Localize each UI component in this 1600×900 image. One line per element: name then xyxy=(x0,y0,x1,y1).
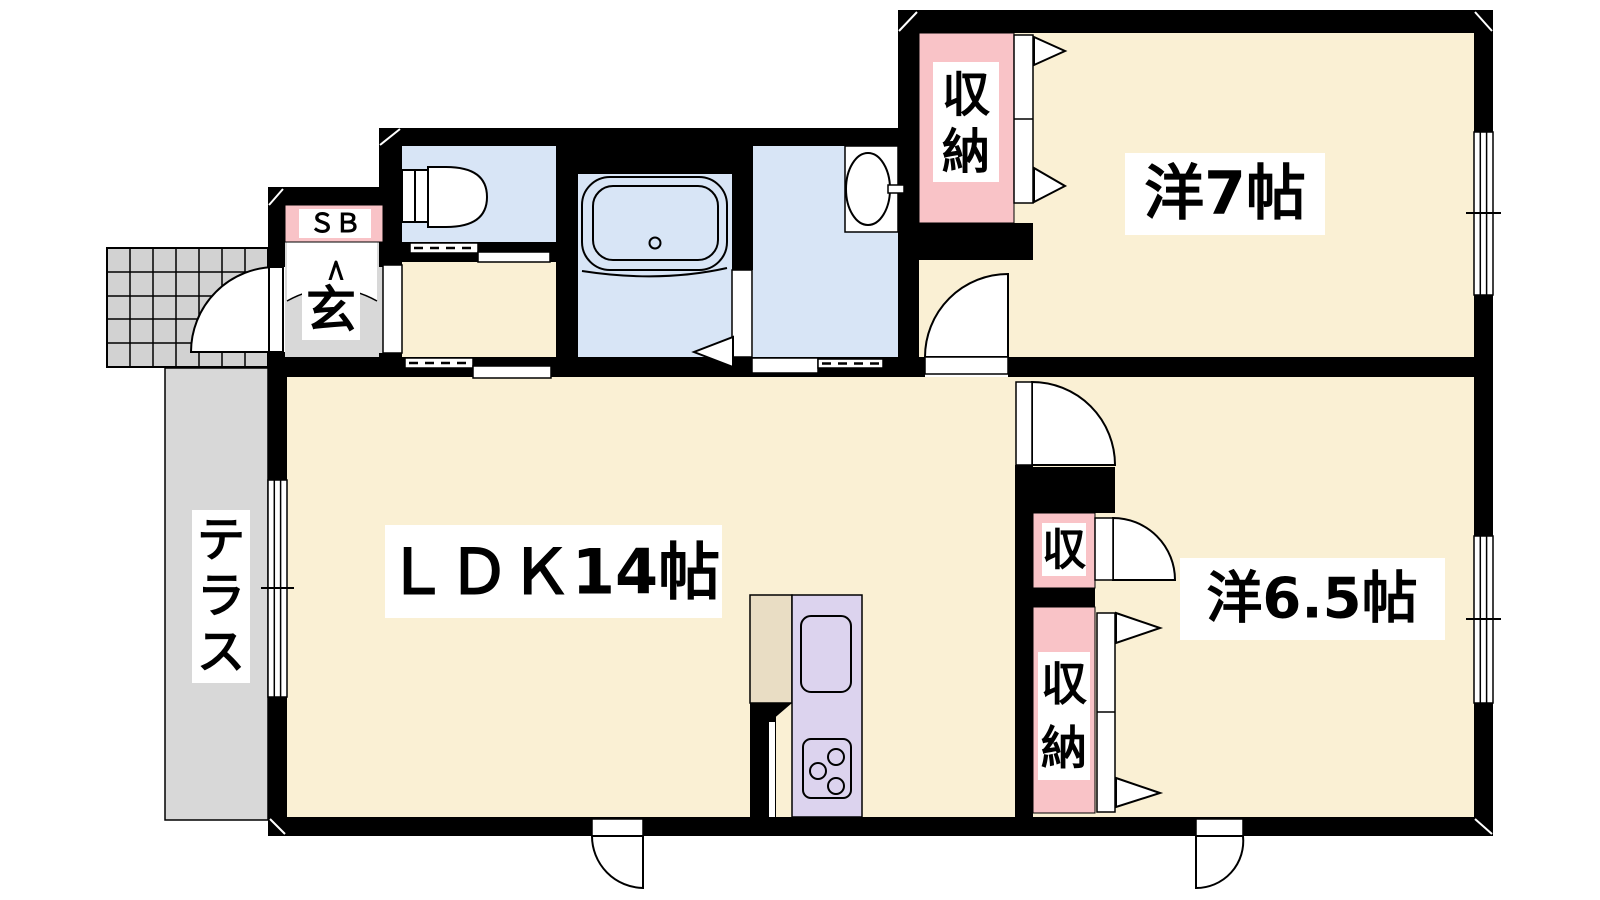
bathroom-floor xyxy=(578,174,732,357)
entrance-label: 玄 xyxy=(306,281,356,339)
genkan-hall-opening xyxy=(383,265,402,353)
bedroom65-label: 洋6.5帖 xyxy=(1206,567,1417,632)
terrace-label-3: ス xyxy=(197,624,245,680)
refrigerator-space xyxy=(750,595,792,703)
closet-small-label: 収 xyxy=(1042,525,1086,576)
terrace-label-2: ラ xyxy=(197,568,245,624)
terrace-label-1: テ xyxy=(197,512,245,568)
bedroom7-label: 洋7帖 xyxy=(1144,159,1306,229)
kitchen xyxy=(750,595,862,817)
closet-ne-label-2: 納 xyxy=(942,124,990,180)
floor-plan: ＳＢ 収 納 xyxy=(0,0,1600,900)
hallway-floor xyxy=(402,262,556,357)
sink-icon xyxy=(845,146,904,232)
toilet-icon xyxy=(402,167,487,227)
closet-ne-label-1: 収 xyxy=(942,67,990,123)
ldk-label: ＬＤＫ14帖 xyxy=(386,536,720,609)
floor-plan-canvas: ＳＢ 収 納 xyxy=(0,0,1600,900)
closet-se-label-1: 収 xyxy=(1041,657,1087,711)
shoe-box-label: ＳＢ xyxy=(309,209,361,239)
closet-se-label-2: 納 xyxy=(1041,721,1087,775)
shoe-box: ＳＢ xyxy=(285,205,383,242)
